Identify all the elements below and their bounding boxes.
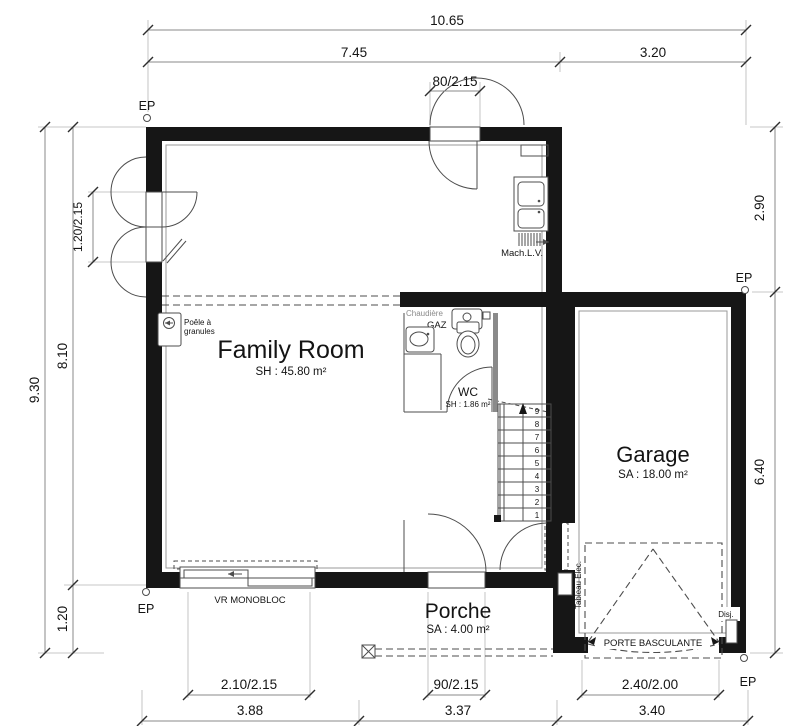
dim-bottom-garage-door: 2.40/2.00 [622,677,678,692]
dishwasher-label: Mach.L.V. [501,248,543,259]
dim-bottom-window: 2.10/2.15 [221,677,277,692]
stair-step-1: 1 [535,511,540,520]
wall-top [146,127,562,141]
room-outlines [166,145,727,633]
dim-top-right: 3.20 [640,45,666,60]
stair-step-7: 7 [535,433,540,442]
stair-step-9: 9 [535,407,540,416]
breaker-box [726,620,737,643]
stair-step-5: 5 [535,459,540,468]
stair-step-3: 3 [535,485,540,494]
window-vr-monobloc [180,567,315,588]
ep-point-mid-right [742,287,749,294]
ep-label-mid-right: EP [736,271,753,285]
pellet-stove: Poêle à granules [158,313,215,346]
dim-right-lower: 6.40 [752,459,767,485]
dishwasher [519,233,549,246]
stair-step-4: 4 [535,472,540,481]
dim-bottom-door: 90/2.15 [433,677,478,692]
ep-point-bottom-left [143,589,150,596]
garage-door: PORTE BASCULANTE [585,543,722,658]
stair-step-6: 6 [535,446,540,455]
stove-label-line2: granules [184,327,215,336]
wc-right-partition [493,313,498,412]
dim-bottom-seg-right: 3.40 [639,703,665,718]
ep-point-top-left [144,115,151,122]
garage-label: Garage [616,442,689,467]
stove-label-line1: Poêle à [184,318,212,327]
stair-up-arrow [519,403,527,414]
wc-room-label: WC [458,385,478,399]
wall-garage-left-upper [553,292,575,523]
wc-area-label: SH : 1.86 m² [446,400,491,409]
room-labels: Family Room SH : 45.80 m² Garage SA : 18… [214,336,689,636]
porch-post [362,645,375,658]
dim-left-total: 9.30 [27,377,42,403]
dim-top-total: 10.65 [430,13,464,28]
porch-label: Porche [425,600,492,623]
garage-door-label: PORTE BASCULANTE [604,638,703,649]
floor-plan-page: Chaudière GAZ WC SH : 1.86 m² 1 2 3 4 5 [0,0,800,726]
dim-left-lower: 1.20 [55,606,70,632]
electrical-panel-label: Tableau Elec. [574,561,583,609]
dim-french-door: 1.20/2.15 [71,202,85,252]
family-room-area: SH : 45.80 m² [256,366,327,378]
dim-bottom-seg-mid: 3.37 [445,703,471,718]
ep-label-bottom-left: EP [138,602,155,616]
wall-left-lower [146,262,162,588]
wall-garage-right [731,292,746,653]
family-room-label: Family Room [217,336,364,364]
ep-label-top-left: EP [139,99,156,113]
electrical-panel [558,573,572,595]
stair-newel [494,515,501,522]
ep-label-bottom-right: EP [740,675,757,689]
kitchen-cabinet [521,145,548,156]
wc-room: Chaudière GAZ WC SH : 1.86 m² [404,309,498,572]
dim-right-upper: 2.90 [752,195,767,221]
porch-door [428,514,486,588]
wall-left-upper [146,127,162,192]
garage-area: SA : 18.00 m² [618,469,688,481]
dim-entrance-door: 80/2.15 [432,74,477,89]
boiler-label-clipped: Chaudière [406,309,443,318]
wall-garage-bottom-left [553,637,588,653]
dim-left-upper: 8.10 [55,343,70,369]
ep-point-bottom-right [741,655,748,662]
stair-step-2: 2 [535,498,540,507]
breaker-label: Disj. [718,610,734,619]
wall-bottom-3 [485,572,562,588]
garage-access-door [500,523,547,570]
floor-plan-drawing: Chaudière GAZ WC SH : 1.86 m² 1 2 3 4 5 [0,0,800,726]
window-label: VR MONOBLOC [214,595,285,606]
stair-step-8: 8 [535,420,540,429]
wall-bottom-2 [310,572,428,588]
dim-top-left: 7.45 [341,45,367,60]
dim-bottom-seg-left: 3.88 [237,703,263,718]
porch-area: SA : 4.00 m² [426,624,489,636]
